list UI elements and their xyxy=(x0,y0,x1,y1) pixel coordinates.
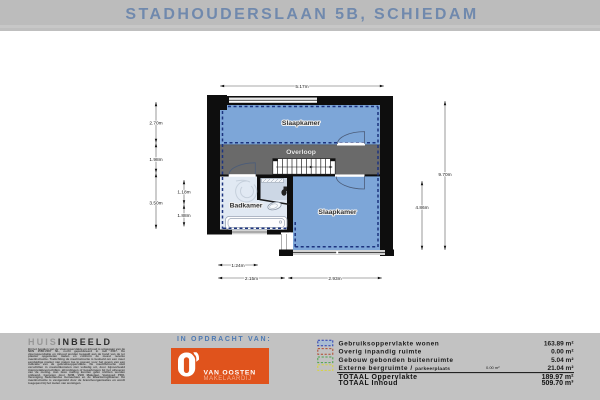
svg-text:Gebouw gebonden buitenruimte: Gebouw gebonden buitenruimte xyxy=(339,357,454,364)
svg-text:4.86m: 4.86m xyxy=(415,205,428,211)
svg-text:Overig inpandig ruimte: Overig inpandig ruimte xyxy=(339,349,422,356)
svg-text:Overloop: Overloop xyxy=(286,149,316,156)
svg-text:Slaapkamer: Slaapkamer xyxy=(318,209,357,216)
svg-text:1.24m: 1.24m xyxy=(231,263,244,269)
svg-text:MAKELAARDIJ: MAKELAARDIJ xyxy=(204,376,252,382)
svg-text:163.89 m²: 163.89 m² xyxy=(544,340,574,347)
svg-text:1.98m: 1.98m xyxy=(149,157,162,163)
svg-text:9.70m: 9.70m xyxy=(438,172,451,178)
svg-text:5.04 m²: 5.04 m² xyxy=(551,357,574,364)
svg-text:1.88m: 1.88m xyxy=(177,213,190,219)
svg-text:0.00 m²: 0.00 m² xyxy=(551,349,574,356)
svg-text:2.70m: 2.70m xyxy=(149,121,162,127)
svg-text:509.70 m³: 509.70 m³ xyxy=(542,380,575,387)
svg-text:2.15m: 2.15m xyxy=(245,276,258,282)
svg-text:0.00 m²: 0.00 m² xyxy=(486,365,500,370)
svg-text:TOTAAL Inhoud: TOTAAL Inhoud xyxy=(339,380,398,387)
svg-text:1.18m: 1.18m xyxy=(177,190,190,196)
svg-text:2.93m: 2.93m xyxy=(328,276,341,282)
svg-text:Gebruiksoppervlakte wonen: Gebruiksoppervlakte wonen xyxy=(339,340,440,347)
svg-text:21.04 m²: 21.04 m² xyxy=(547,365,574,372)
svg-text:Slaapkamer: Slaapkamer xyxy=(282,120,321,127)
svg-text:5.17m: 5.17m xyxy=(295,84,308,90)
svg-text:3.50m: 3.50m xyxy=(149,201,162,207)
svg-text:Externe bergruimte / parkeerpl: Externe bergruimte / parkeerplaats xyxy=(339,365,451,372)
svg-text:Badkamer: Badkamer xyxy=(230,203,263,210)
